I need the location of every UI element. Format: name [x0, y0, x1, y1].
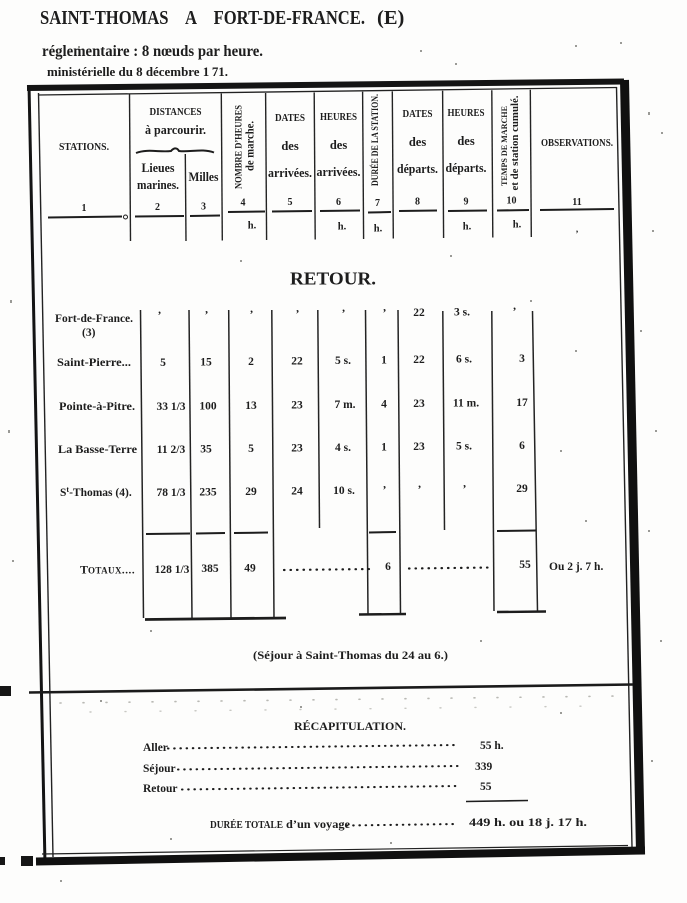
svg-text:11 m.: 11 m.	[453, 398, 479, 410]
svg-text:Aller: Aller	[143, 742, 168, 754]
svg-text:Pointe-à-Pitre.: Pointe-à-Pitre.	[59, 401, 135, 413]
svg-text:(E): (E)	[377, 7, 404, 29]
svg-text:’: ’	[512, 304, 516, 318]
svg-text:1: 1	[381, 442, 387, 454]
svg-text:’: ’	[249, 307, 253, 321]
svg-text:STATIONS.: STATIONS.	[59, 142, 109, 153]
svg-text:’: ’	[295, 307, 299, 321]
svg-text:Milles: Milles	[189, 170, 219, 184]
svg-text:HEURES: HEURES	[448, 108, 485, 119]
svg-text:ministérielle du 8 décembre 1: ministérielle du 8 décembre 1 71.	[47, 65, 228, 79]
svg-text:13: 13	[245, 400, 257, 412]
svg-text:’: ’	[417, 482, 421, 496]
svg-text:’: ’	[341, 306, 345, 320]
svg-text:des: des	[409, 135, 427, 149]
svg-text:et de station cumulé.: et de station cumulé.	[510, 95, 521, 190]
svg-text:’: ’	[462, 482, 466, 496]
svg-text:29: 29	[516, 483, 528, 495]
svg-text:449 h. ou 18 j. 17 h.: 449 h. ou 18 j. 17 h.	[469, 817, 587, 829]
svg-text:6: 6	[385, 561, 391, 573]
svg-text:RETOUR.: RETOUR.	[290, 269, 376, 289]
svg-text:Ou 2 j. 7 h.: Ou 2 j. 7 h.	[549, 561, 603, 573]
svg-text:100: 100	[199, 401, 217, 413]
svg-text:Saint-Pierre...: Saint-Pierre...	[57, 357, 131, 369]
svg-text:23: 23	[413, 441, 425, 453]
svg-text:8: 8	[415, 197, 420, 208]
svg-text:4 s.: 4 s.	[335, 442, 351, 454]
svg-text:des: des	[330, 138, 348, 152]
svg-text:5: 5	[160, 357, 166, 369]
svg-text:6 s.: 6 s.	[456, 354, 472, 366]
svg-text:h.: h.	[374, 224, 383, 235]
svg-text:départs.: départs.	[397, 162, 438, 176]
svg-text:OBSERVATIONS.: OBSERVATIONS.	[541, 138, 613, 149]
svg-text:Lieues: Lieues	[142, 161, 175, 175]
svg-text:de marche.: de marche.	[245, 121, 257, 171]
svg-text:des: des	[281, 139, 299, 153]
svg-text:(Séjour à Saint-Thomas du 24 a: (Séjour à Saint-Thomas du 24 au 6.)	[253, 650, 448, 662]
svg-text:TOTAUX....: TOTAUX....	[80, 563, 135, 577]
svg-text:29: 29	[245, 486, 257, 498]
svg-text:10: 10	[507, 196, 517, 207]
svg-text:35: 35	[200, 444, 212, 456]
svg-text:11: 11	[572, 197, 581, 208]
svg-text:’: ’	[576, 229, 579, 239]
svg-text:3 s.: 3 s.	[454, 307, 470, 319]
svg-text:DATES: DATES	[275, 113, 305, 124]
svg-text:17: 17	[516, 397, 528, 409]
svg-text:55: 55	[519, 559, 531, 571]
svg-text:St-Thomas (4).: St-Thomas (4).	[60, 485, 132, 499]
svg-text:5 s.: 5 s.	[335, 355, 351, 367]
svg-text:h.: h.	[463, 222, 472, 233]
svg-text:’: ’	[157, 308, 161, 322]
svg-text:’: ’	[382, 306, 386, 320]
svg-text:24: 24	[291, 486, 303, 498]
svg-text:DATES: DATES	[403, 109, 433, 120]
svg-text:9: 9	[464, 197, 469, 208]
svg-text:4: 4	[241, 198, 246, 209]
svg-text:6: 6	[519, 440, 525, 452]
svg-text:h.: h.	[338, 222, 347, 233]
svg-text:Fort-de-France.: Fort-de-France.	[55, 313, 133, 325]
svg-text:22: 22	[413, 307, 425, 319]
svg-text:départs.: départs.	[446, 161, 487, 175]
svg-text:5: 5	[248, 443, 254, 455]
svg-text:h.: h.	[248, 221, 257, 232]
svg-text:’: ’	[204, 308, 208, 322]
svg-text:’: ’	[382, 483, 386, 497]
svg-text:4: 4	[381, 399, 387, 411]
svg-text:23: 23	[291, 443, 303, 455]
svg-text:(3): (3)	[82, 327, 96, 339]
svg-text:15: 15	[200, 357, 212, 369]
svg-text:à parcourir.: à parcourir.	[145, 122, 206, 137]
svg-text:23: 23	[291, 400, 303, 412]
svg-text:3: 3	[201, 202, 206, 213]
svg-text:33 1/3: 33 1/3	[156, 401, 185, 413]
svg-text:55 h.: 55 h.	[480, 740, 504, 752]
svg-text:La Basse-Terre: La Basse-Terre	[58, 444, 137, 456]
svg-text:DURÉE DE LA STATION.: DURÉE DE LA STATION.	[370, 94, 380, 186]
svg-text:5 s.: 5 s.	[456, 441, 472, 453]
svg-text:marines.: marines.	[137, 178, 179, 192]
svg-text:3: 3	[519, 353, 525, 365]
svg-text:DURÉE TOTALE: DURÉE TOTALE	[210, 819, 283, 831]
svg-text:78 1/3: 78 1/3	[156, 487, 185, 499]
svg-text:arrivées.: arrivées.	[268, 166, 312, 180]
svg-text:5: 5	[288, 197, 293, 208]
svg-text:235: 235	[199, 487, 217, 499]
svg-text:7: 7	[375, 198, 380, 209]
svg-text:10 s.: 10 s.	[333, 485, 355, 497]
svg-text:22: 22	[413, 354, 425, 366]
svg-text:NOMBRE D’HEURES: NOMBRE D’HEURES	[234, 105, 244, 189]
svg-text:11 2/3: 11 2/3	[157, 444, 186, 456]
svg-text:1: 1	[82, 203, 87, 214]
svg-text:128 1/3: 128 1/3	[155, 564, 190, 576]
svg-text:385: 385	[201, 563, 219, 575]
svg-text:Séjour: Séjour	[143, 763, 176, 775]
svg-text:RÉCAPITULATION.: RÉCAPITULATION.	[294, 719, 406, 733]
svg-text:d’un voyage: d’un voyage	[286, 819, 350, 831]
svg-text:2: 2	[248, 356, 254, 368]
svg-text:des: des	[457, 134, 475, 148]
svg-text:7 m.: 7 m.	[334, 399, 355, 411]
svg-text:h.: h.	[513, 220, 522, 231]
svg-text:339: 339	[475, 761, 493, 773]
svg-text:réglementaire : 8 nœuds par he: réglementaire : 8 nœuds par heure.	[42, 43, 263, 60]
svg-text:2: 2	[155, 202, 160, 213]
svg-text:23: 23	[413, 398, 425, 410]
svg-text:1: 1	[381, 355, 387, 367]
svg-text:22: 22	[291, 356, 303, 368]
svg-text:55: 55	[480, 781, 492, 793]
svg-text:Retour: Retour	[143, 783, 178, 795]
svg-text:arrivées.: arrivées.	[317, 165, 361, 179]
svg-text:TEMPS DE MARCHE: TEMPS DE MARCHE	[499, 106, 509, 186]
svg-text:6: 6	[336, 197, 341, 208]
svg-text:DISTANCES: DISTANCES	[150, 107, 202, 118]
svg-text:HEURES: HEURES	[320, 112, 357, 123]
svg-text:SAINT-THOMAS A FORT-DE-FRANCE.: SAINT-THOMAS A FORT-DE-FRANCE.	[40, 7, 365, 29]
svg-text:49: 49	[244, 563, 256, 575]
